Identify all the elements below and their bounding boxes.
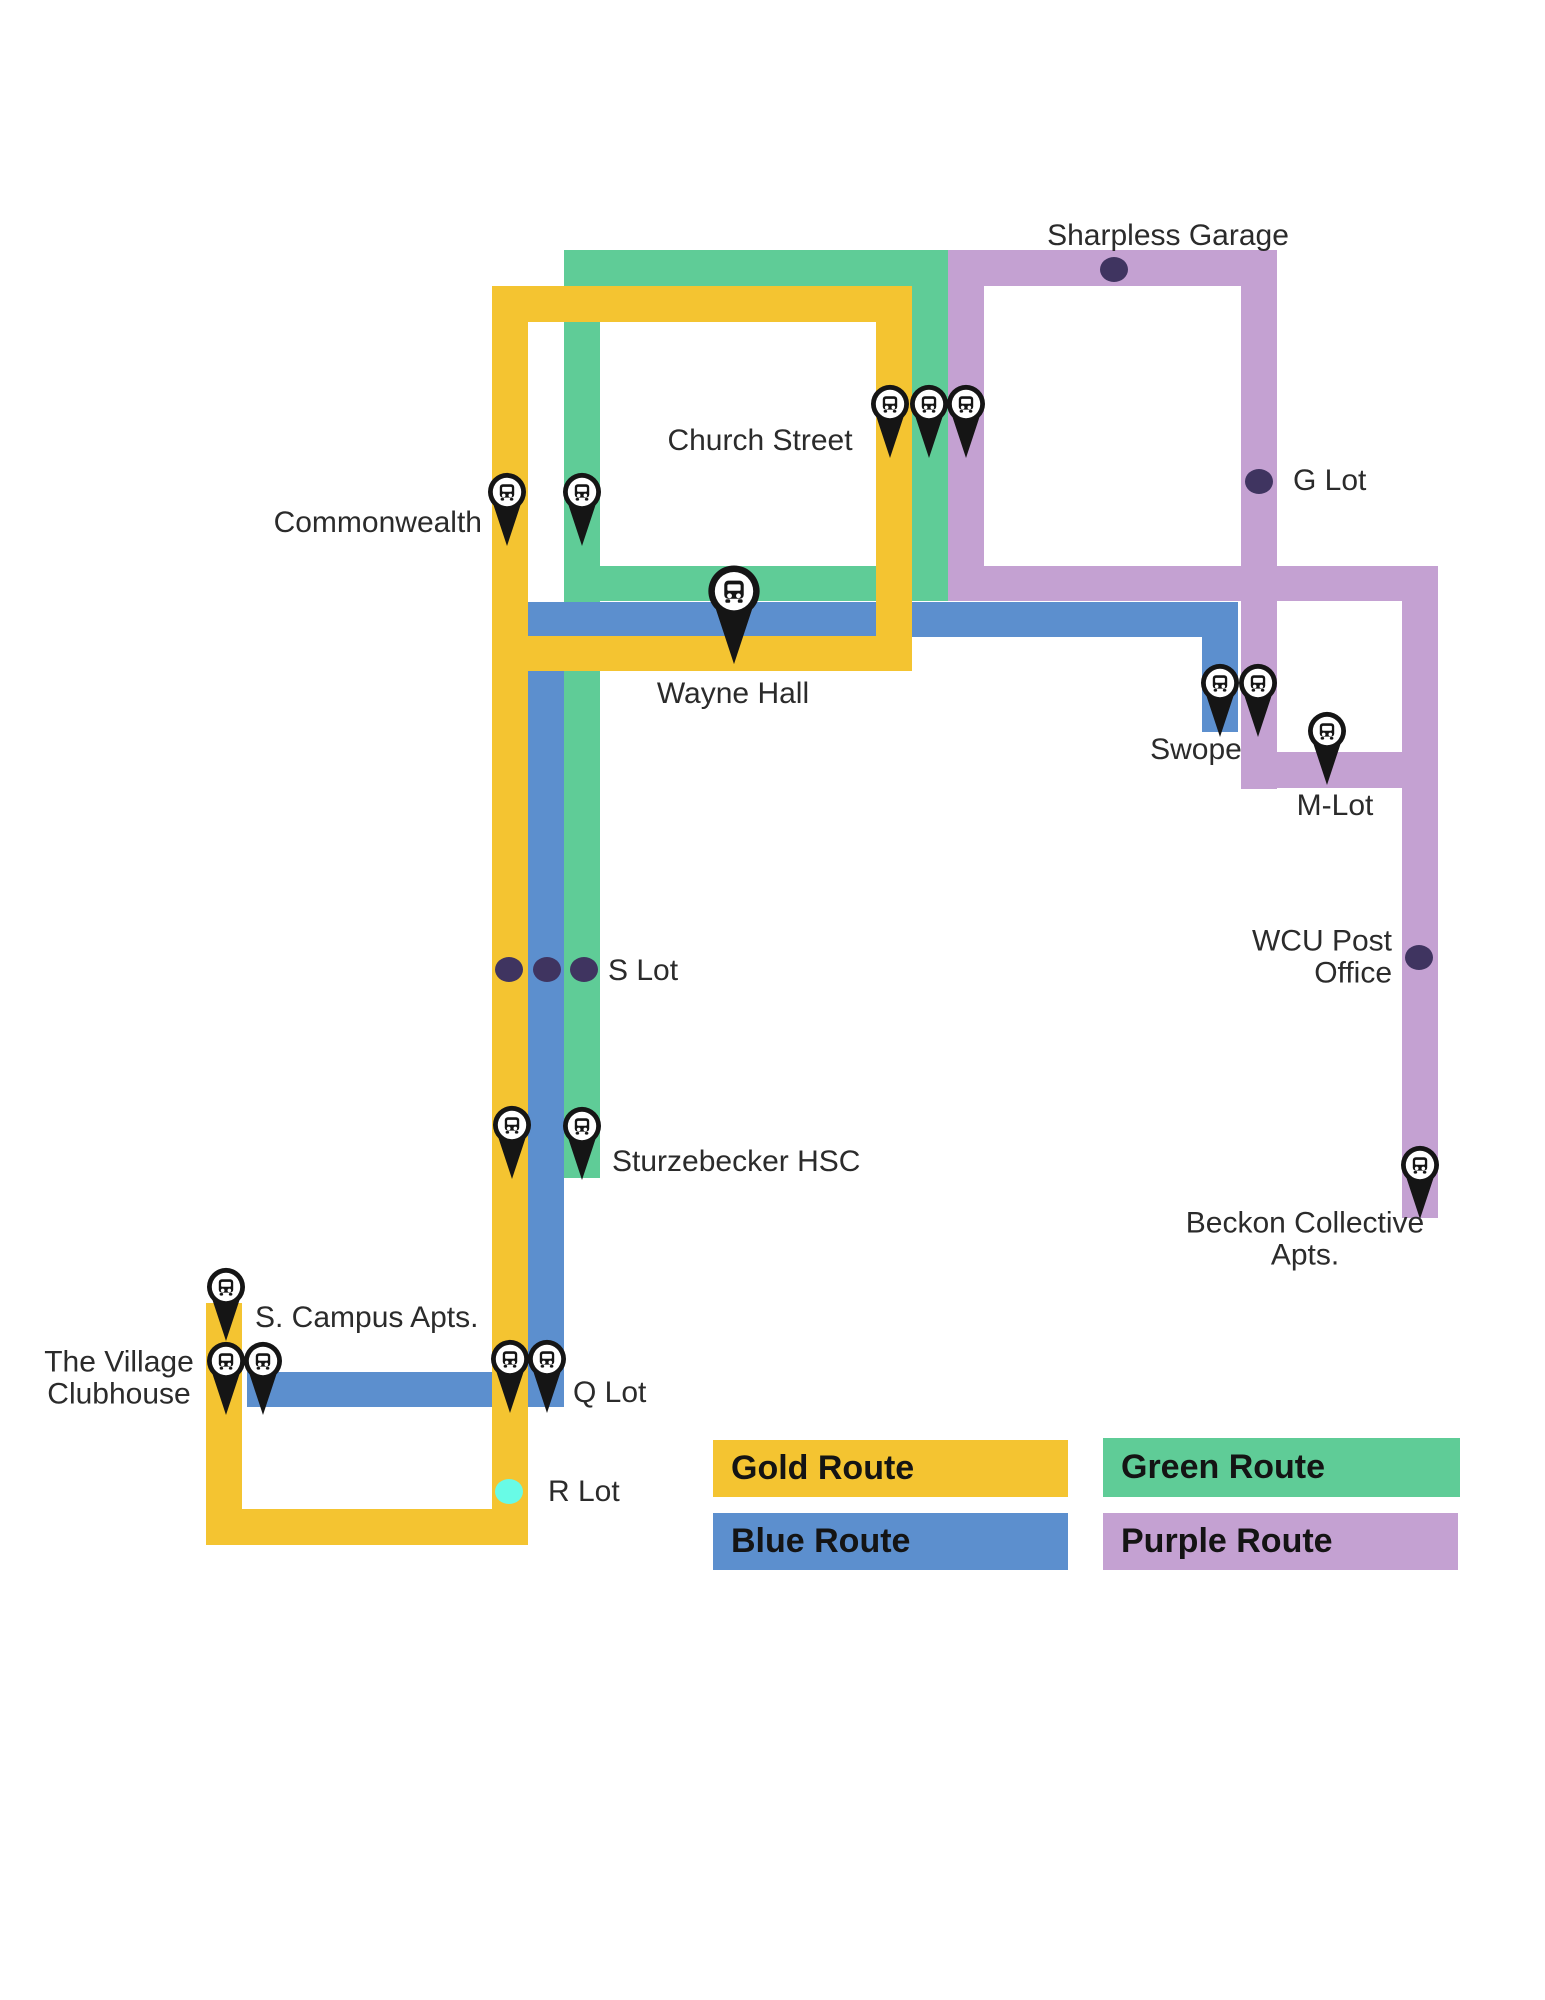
bus-stop-pin-church-street bbox=[909, 384, 949, 460]
legend-blue-route-label: Blue Route bbox=[731, 1522, 910, 1561]
stop-label-wcu-post-office: WCU Post Office bbox=[1239, 926, 1392, 991]
stop-label-commonwealth: Commonwealth bbox=[274, 507, 482, 539]
legend-purple-route: Purple Route bbox=[1103, 1513, 1458, 1570]
bus-pin-icon bbox=[243, 1341, 283, 1417]
bus-pin-icon bbox=[870, 384, 910, 460]
route-purple-segment-4 bbox=[948, 566, 1438, 601]
route-gold-segment-6 bbox=[206, 1509, 528, 1545]
bus-stop-pin-q-lot bbox=[490, 1339, 530, 1415]
bus-pin-icon bbox=[527, 1339, 567, 1415]
bus-pin-icon bbox=[490, 1339, 530, 1415]
bus-stop-pin-the-village-clubhouse bbox=[243, 1341, 283, 1417]
bus-stop-pin-commonwealth bbox=[487, 472, 527, 548]
stop-dot-wcu-post-office bbox=[1405, 945, 1433, 970]
bus-stop-pin-q-lot bbox=[527, 1339, 567, 1415]
legend-purple-route-label: Purple Route bbox=[1121, 1522, 1333, 1561]
stop-dot-sharpless-garage bbox=[1100, 257, 1128, 282]
stop-label-g-lot: G Lot bbox=[1293, 465, 1366, 497]
bus-stop-pin-church-street bbox=[870, 384, 910, 460]
bus-stop-pin-the-village-clubhouse bbox=[206, 1341, 246, 1417]
legend-blue-route: Blue Route bbox=[713, 1513, 1068, 1570]
route-green-segment-2 bbox=[564, 250, 600, 1178]
bus-pin-icon bbox=[946, 384, 986, 460]
stop-label-s-campus-apts: S. Campus Apts. bbox=[255, 1302, 478, 1334]
bus-pin-icon bbox=[562, 1106, 602, 1182]
stop-label-church-street: Church Street bbox=[667, 425, 852, 457]
bus-stop-pin-sturzebecker-hsc bbox=[562, 1106, 602, 1182]
stop-dot-s-lot bbox=[495, 957, 523, 982]
legend-gold-route-label: Gold Route bbox=[731, 1449, 914, 1488]
stop-label-r-lot: R Lot bbox=[548, 1476, 620, 1508]
legend-gold-route: Gold Route bbox=[713, 1440, 1068, 1497]
stop-dot-s-lot bbox=[570, 957, 598, 982]
shuttle-route-map: Sharpless GarageG LotChurch StreetCommon… bbox=[0, 0, 1545, 2000]
stop-dot-r-lot bbox=[495, 1479, 523, 1504]
bus-stop-pin-church-street bbox=[946, 384, 986, 460]
bus-stop-pin-swope bbox=[1200, 663, 1240, 739]
stop-label-the-village-clubhouse: The Village Clubhouse bbox=[44, 1347, 194, 1412]
bus-pin-icon bbox=[492, 1105, 532, 1181]
stop-label-sharpless-garage: Sharpless Garage bbox=[1047, 220, 1289, 252]
route-gold-segment-1 bbox=[492, 286, 912, 322]
legend-green-route: Green Route bbox=[1103, 1438, 1460, 1497]
route-green-segment-1 bbox=[564, 250, 948, 286]
bus-pin-icon bbox=[1200, 663, 1240, 739]
bus-pin-icon bbox=[206, 1341, 246, 1417]
stop-label-m-lot: M-Lot bbox=[1297, 790, 1374, 822]
bus-pin-icon bbox=[206, 1267, 246, 1343]
bus-pin-icon bbox=[707, 564, 761, 667]
bus-stop-pin-wayne-hall bbox=[707, 564, 761, 667]
stop-label-beckon-collective-apts: Beckon Collective Apts. bbox=[1185, 1208, 1425, 1273]
stop-label-sturzebecker-hsc: Sturzebecker HSC bbox=[612, 1146, 860, 1178]
bus-stop-pin-m-lot bbox=[1307, 711, 1347, 787]
stop-label-swope: Swope bbox=[1150, 734, 1242, 766]
route-gold-segment-3 bbox=[876, 286, 912, 671]
stop-label-s-lot: S Lot bbox=[608, 955, 678, 987]
bus-pin-icon bbox=[909, 384, 949, 460]
stop-dot-g-lot bbox=[1245, 469, 1273, 494]
bus-pin-icon bbox=[1238, 663, 1278, 739]
route-purple-segment-5 bbox=[1402, 566, 1438, 1218]
bus-pin-icon bbox=[562, 472, 602, 548]
route-blue-segment-3 bbox=[528, 602, 564, 1407]
legend-green-route-label: Green Route bbox=[1121, 1448, 1325, 1487]
bus-pin-icon bbox=[1307, 711, 1347, 787]
bus-stop-pin-sturzebecker-hsc bbox=[492, 1105, 532, 1181]
bus-pin-icon bbox=[487, 472, 527, 548]
bus-stop-pin-commonwealth bbox=[562, 472, 602, 548]
bus-stop-pin-swope bbox=[1238, 663, 1278, 739]
stop-dot-s-lot bbox=[533, 957, 561, 982]
bus-stop-pin-s-campus-apts bbox=[206, 1267, 246, 1343]
stop-label-wayne-hall: Wayne Hall bbox=[657, 678, 809, 710]
stop-label-q-lot: Q Lot bbox=[573, 1377, 646, 1409]
